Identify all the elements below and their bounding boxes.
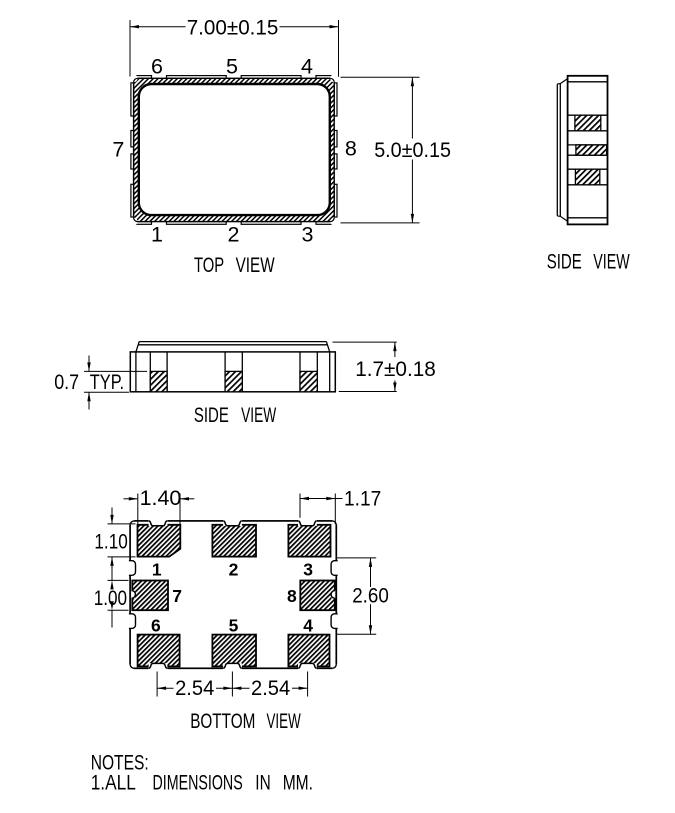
svg-text:BOTTOM: BOTTOM <box>190 709 255 733</box>
svg-text:8: 8 <box>287 586 297 606</box>
svg-text:VIEW: VIEW <box>267 709 302 733</box>
svg-text:VIEW: VIEW <box>241 403 277 427</box>
svg-text:IN: IN <box>255 770 270 794</box>
svg-text:3: 3 <box>303 560 313 580</box>
svg-text:1.ALL: 1.ALL <box>91 770 136 794</box>
svg-text:5: 5 <box>226 55 238 79</box>
svg-text:3: 3 <box>302 223 314 247</box>
svg-text:VIEW: VIEW <box>236 253 275 277</box>
svg-text:7: 7 <box>172 586 182 606</box>
svg-text:5: 5 <box>229 615 239 635</box>
svg-text:4: 4 <box>301 55 313 79</box>
svg-text:1.40: 1.40 <box>140 486 182 510</box>
svg-text:7.00±0.15: 7.00±0.15 <box>187 16 279 40</box>
svg-text:1: 1 <box>151 223 163 247</box>
svg-text:1.7±0.18: 1.7±0.18 <box>355 357 436 381</box>
svg-text:4: 4 <box>303 615 313 635</box>
svg-text:DIMENSIONS: DIMENSIONS <box>153 770 243 794</box>
svg-text:1: 1 <box>152 560 162 580</box>
svg-text:0.7: 0.7 <box>54 370 79 394</box>
svg-text:SIDE: SIDE <box>194 403 229 427</box>
svg-text:2.54: 2.54 <box>251 676 290 700</box>
svg-text:MM.: MM. <box>283 770 313 794</box>
svg-text:1.10: 1.10 <box>94 530 127 554</box>
svg-text:1.17: 1.17 <box>344 486 381 510</box>
svg-text:6: 6 <box>151 615 161 635</box>
svg-text:7: 7 <box>112 137 124 161</box>
svg-text:2.54: 2.54 <box>175 676 214 700</box>
svg-text:8: 8 <box>345 137 357 161</box>
svg-text:1.00: 1.00 <box>94 586 127 610</box>
svg-text:2: 2 <box>228 223 240 247</box>
svg-text:SIDE: SIDE <box>547 249 582 273</box>
svg-text:5.0±0.15: 5.0±0.15 <box>374 138 451 162</box>
svg-text:TOP: TOP <box>194 253 224 277</box>
svg-text:VIEW: VIEW <box>593 249 630 273</box>
svg-text:2.60: 2.60 <box>352 583 389 607</box>
svg-text:2: 2 <box>229 560 239 580</box>
svg-text:TYP.: TYP. <box>90 370 124 394</box>
svg-text:6: 6 <box>151 55 163 79</box>
